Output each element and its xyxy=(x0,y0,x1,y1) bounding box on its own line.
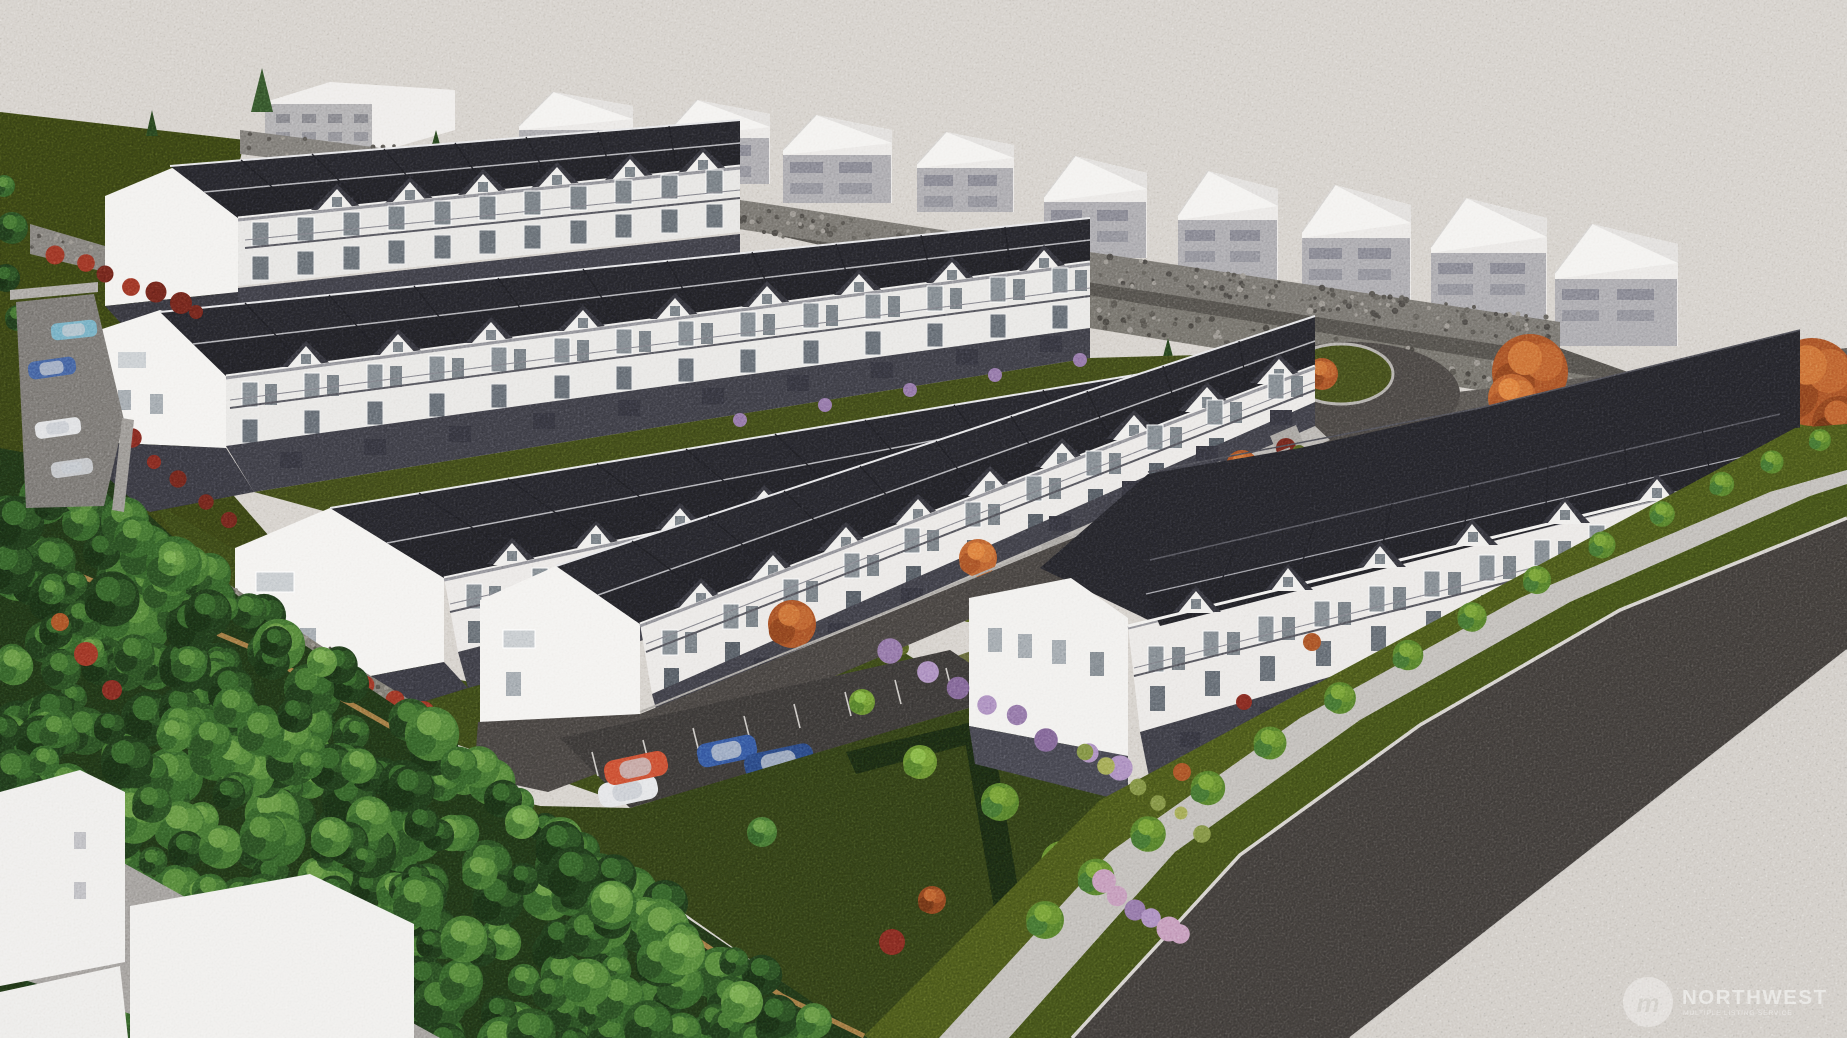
svg-text:m: m xyxy=(1636,988,1659,1018)
svg-text:MULTIPLE LISTING SERVICE: MULTIPLE LISTING SERVICE xyxy=(1683,1010,1792,1017)
svg-text:NORTHWEST: NORTHWEST xyxy=(1682,986,1828,1009)
